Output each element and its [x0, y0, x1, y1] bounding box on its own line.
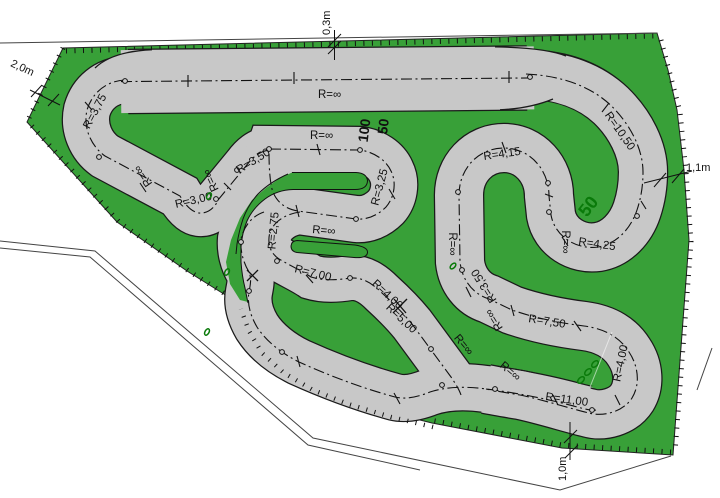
- svg-text:R=∞: R=∞: [446, 232, 458, 255]
- svg-text:R=∞: R=∞: [312, 224, 336, 238]
- svg-text:50: 50: [374, 117, 392, 135]
- svg-text:R=∞: R=∞: [310, 130, 333, 142]
- svg-text:R=∞: R=∞: [559, 230, 571, 253]
- svg-text:0,3m: 0,3m: [321, 11, 333, 35]
- svg-text:R=∞: R=∞: [318, 89, 341, 101]
- svg-text:100: 100: [355, 118, 374, 143]
- svg-text:1,1m: 1,1m: [686, 162, 710, 174]
- svg-text:1,0m: 1,0m: [557, 457, 569, 481]
